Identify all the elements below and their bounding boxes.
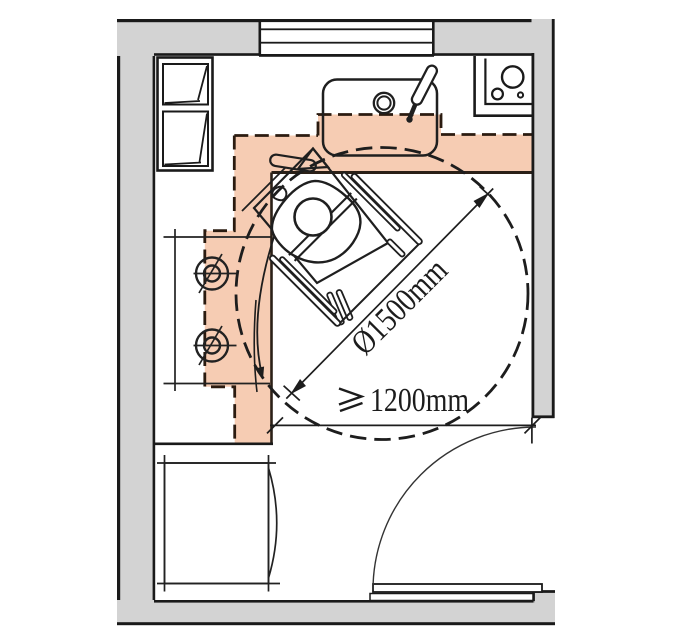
svg-text:1200mm: 1200mm [370, 380, 469, 418]
